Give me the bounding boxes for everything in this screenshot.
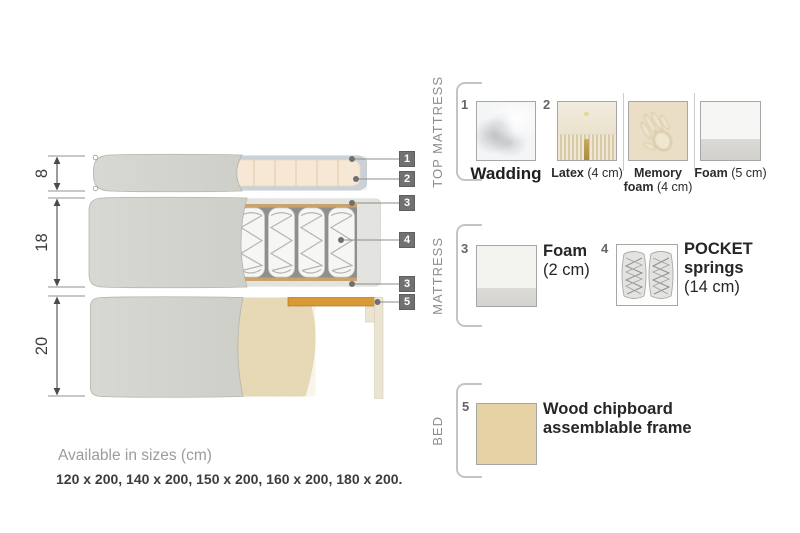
bottom-batten <box>236 278 357 282</box>
bed-base-cover <box>90 297 243 398</box>
dimension-label-20: 20 <box>33 337 51 355</box>
section-title-bed: BED <box>426 385 448 477</box>
pocket-springs-swatch <box>616 244 678 306</box>
legend-divider <box>694 93 695 171</box>
sizes-title: Available in sizes (cm) <box>58 447 212 465</box>
frame-block <box>366 307 375 322</box>
top-mattress-cover <box>93 154 242 192</box>
chipboard-swatch <box>476 403 537 465</box>
bed-cutaway-diagram: 8 18 20 <box>0 140 430 430</box>
callout-4: 4 <box>399 232 415 248</box>
pocket-spring <box>269 208 295 277</box>
chipboard-graphic <box>477 404 536 464</box>
mattress-layer <box>89 197 381 288</box>
dimension-arrows <box>54 157 61 396</box>
section-title-top-mattress: TOP MATTRESS <box>426 84 448 180</box>
chipboard-panel <box>228 298 315 397</box>
sizes-list: 120 x 200, 140 x 200, 150 x 200, 160 x 2… <box>56 471 402 487</box>
foam-5cm-label: Foam (5 cm) <box>684 166 777 180</box>
foam-2cm-label: Foam (2 cm) <box>543 242 590 280</box>
handprint-graphic <box>629 102 687 160</box>
bed-base-layer <box>90 297 383 399</box>
dimension-label-8: 8 <box>33 169 51 178</box>
swatch-number: 5 <box>462 399 469 414</box>
legend-divider <box>623 93 624 171</box>
wadding-swatch <box>476 101 536 161</box>
piping-button <box>93 186 98 191</box>
callout-3: 3 <box>399 195 415 211</box>
latex-fleck <box>584 112 589 116</box>
chipboard-label: Wood chipboard assemblable frame <box>543 400 692 438</box>
wadding-label: Wadding <box>458 164 554 184</box>
latex-swatch <box>557 101 617 161</box>
top-batten <box>236 204 357 208</box>
pocket-springs-label: POCKET springs (14 cm) <box>684 240 753 297</box>
memory-foam-swatch <box>628 101 688 161</box>
callout-1: 1 <box>399 151 415 167</box>
section-title-mattress: MATTRESS <box>426 226 448 326</box>
bed-construction-infographic: 8 18 20 <box>0 0 800 533</box>
pocket-spring <box>299 208 325 277</box>
swatch-number: 1 <box>461 97 468 112</box>
callout-3b: 3 <box>399 276 415 292</box>
dimension-label-18: 18 <box>33 233 51 251</box>
swatch-number: 3 <box>461 241 468 256</box>
wood-slat <box>288 298 375 307</box>
top-mattress-layer <box>93 154 367 192</box>
dimension-ticks <box>48 156 85 396</box>
swatch-number: 2 <box>543 97 550 112</box>
piping-button <box>93 155 98 160</box>
callout-5: 5 <box>399 294 415 310</box>
foam-2cm-swatch <box>476 245 537 307</box>
latex-notch <box>584 139 589 160</box>
callout-2: 2 <box>399 171 415 187</box>
frame-post <box>375 298 384 399</box>
foam-5cm-swatch <box>700 101 761 161</box>
mattress-cover <box>89 197 247 288</box>
pocket-springs-graphic <box>617 245 677 305</box>
swatch-number: 4 <box>601 241 608 256</box>
